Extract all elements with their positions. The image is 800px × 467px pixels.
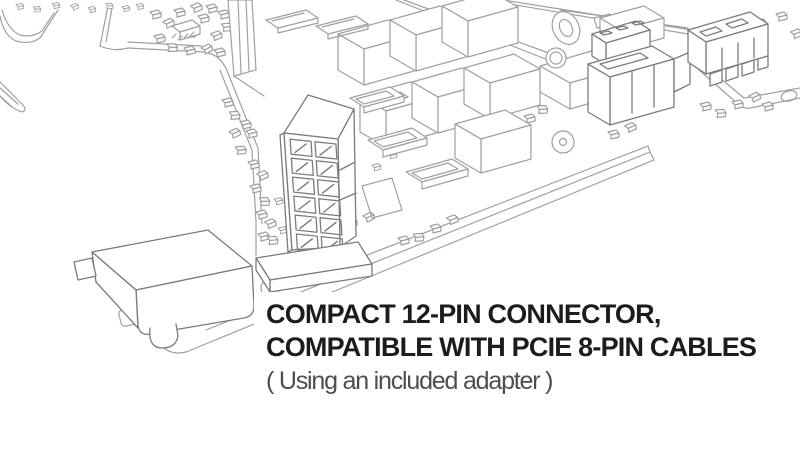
- box-foot: [150, 324, 178, 348]
- caption-heading-line-1: COMPACT 12-PIN CONNECTOR,: [266, 298, 756, 331]
- caption-subtitle: ( Using an included adapter ): [266, 366, 756, 397]
- caption-heading-line-2: COMPATIBLE WITH PCIE 8-PIN CABLES: [266, 331, 756, 364]
- video-frame: COMPACT 12-PIN CONNECTOR, COMPATIBLE WIT…: [0, 0, 800, 467]
- caption: COMPACT 12-PIN CONNECTOR, COMPATIBLE WIT…: [254, 292, 766, 405]
- large-capacitor-box: [74, 230, 254, 348]
- twelve-pin-connector: [256, 95, 372, 292]
